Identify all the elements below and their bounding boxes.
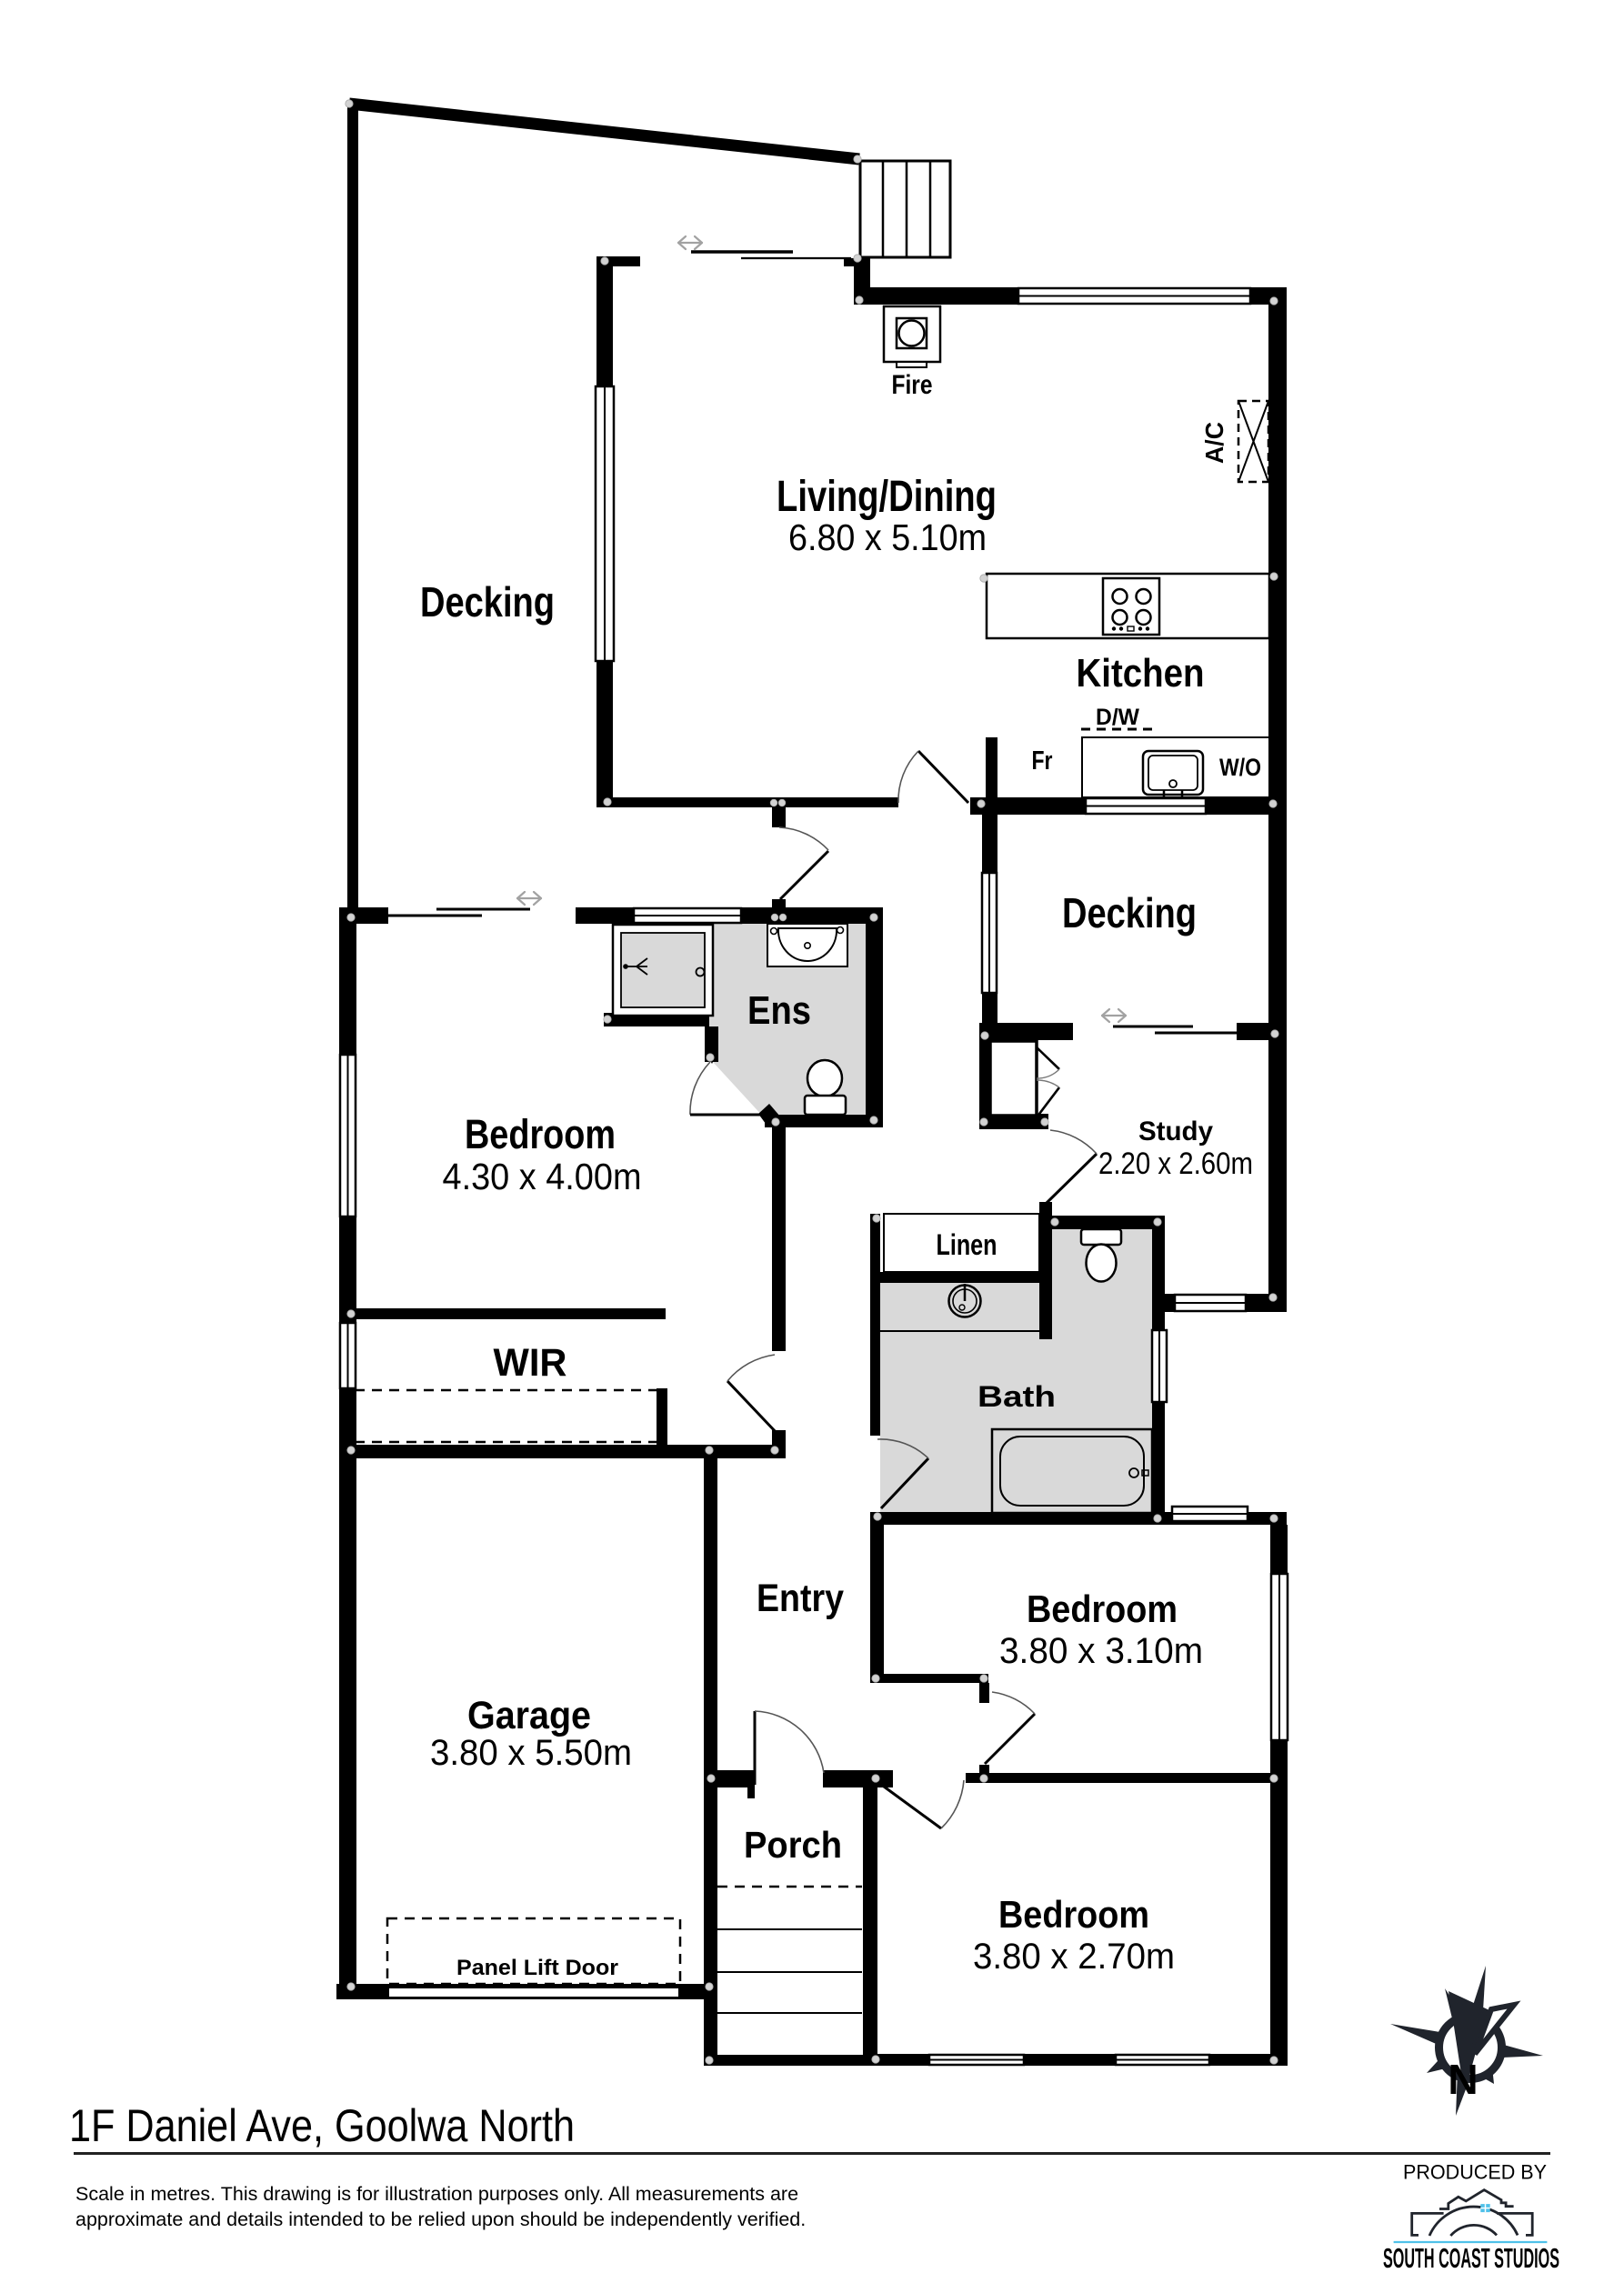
svg-text:WIR: WIR [494,1341,567,1385]
svg-text:Bedroom: Bedroom [998,1893,1149,1936]
svg-text:Panel Lift Door: Panel Lift Door [456,1956,618,1980]
svg-text:approximate and details intend: approximate and details intended to be r… [75,2208,806,2230]
svg-text:3.80 x 3.10m: 3.80 x 3.10m [999,1631,1203,1671]
svg-text:Fr: Fr [1032,746,1053,776]
svg-text:A/C: A/C [1200,422,1228,464]
svg-text:6.80 x 5.10m: 6.80 x 5.10m [788,516,987,558]
svg-text:Decking: Decking [1062,889,1197,936]
svg-text:1F Daniel Ave, Goolwa North: 1F Daniel Ave, Goolwa North [69,2100,575,2151]
svg-text:Study: Study [1138,1116,1213,1147]
svg-text:Kitchen: Kitchen [1077,651,1205,696]
svg-text:Living/Dining: Living/Dining [777,473,997,521]
svg-text:3.80 x 2.70m: 3.80 x 2.70m [973,1937,1175,1977]
svg-text:2.20 x 2.60m: 2.20 x 2.60m [1098,1147,1253,1181]
svg-text:W/O: W/O [1219,754,1261,781]
svg-text:Garage: Garage [467,1694,591,1737]
svg-text:Decking: Decking [420,578,555,626]
svg-text:Ens: Ens [747,988,811,1033]
svg-text:3.80 x 5.50m: 3.80 x 5.50m [430,1733,632,1773]
svg-text:N: N [1448,2056,1478,2103]
svg-text:Bedroom: Bedroom [1027,1587,1178,1630]
svg-text:Bedroom: Bedroom [465,1111,616,1157]
svg-text:Linen: Linen [937,1228,997,1261]
svg-text:Scale in metres. This drawing: Scale in metres. This drawing is for ill… [75,2183,798,2205]
svg-text:Entry: Entry [757,1577,844,1620]
svg-text:Fire: Fire [892,370,933,400]
svg-text:PRODUCED BY: PRODUCED BY [1403,2161,1547,2184]
svg-text:D/W: D/W [1096,705,1139,730]
svg-text:SOUTH COAST STUDIOS: SOUTH COAST STUDIOS [1383,2242,1559,2273]
svg-text:Porch: Porch [744,1824,842,1866]
svg-text:Bath: Bath [977,1380,1056,1413]
svg-text:4.30 x 4.00m: 4.30 x 4.00m [443,1156,642,1197]
